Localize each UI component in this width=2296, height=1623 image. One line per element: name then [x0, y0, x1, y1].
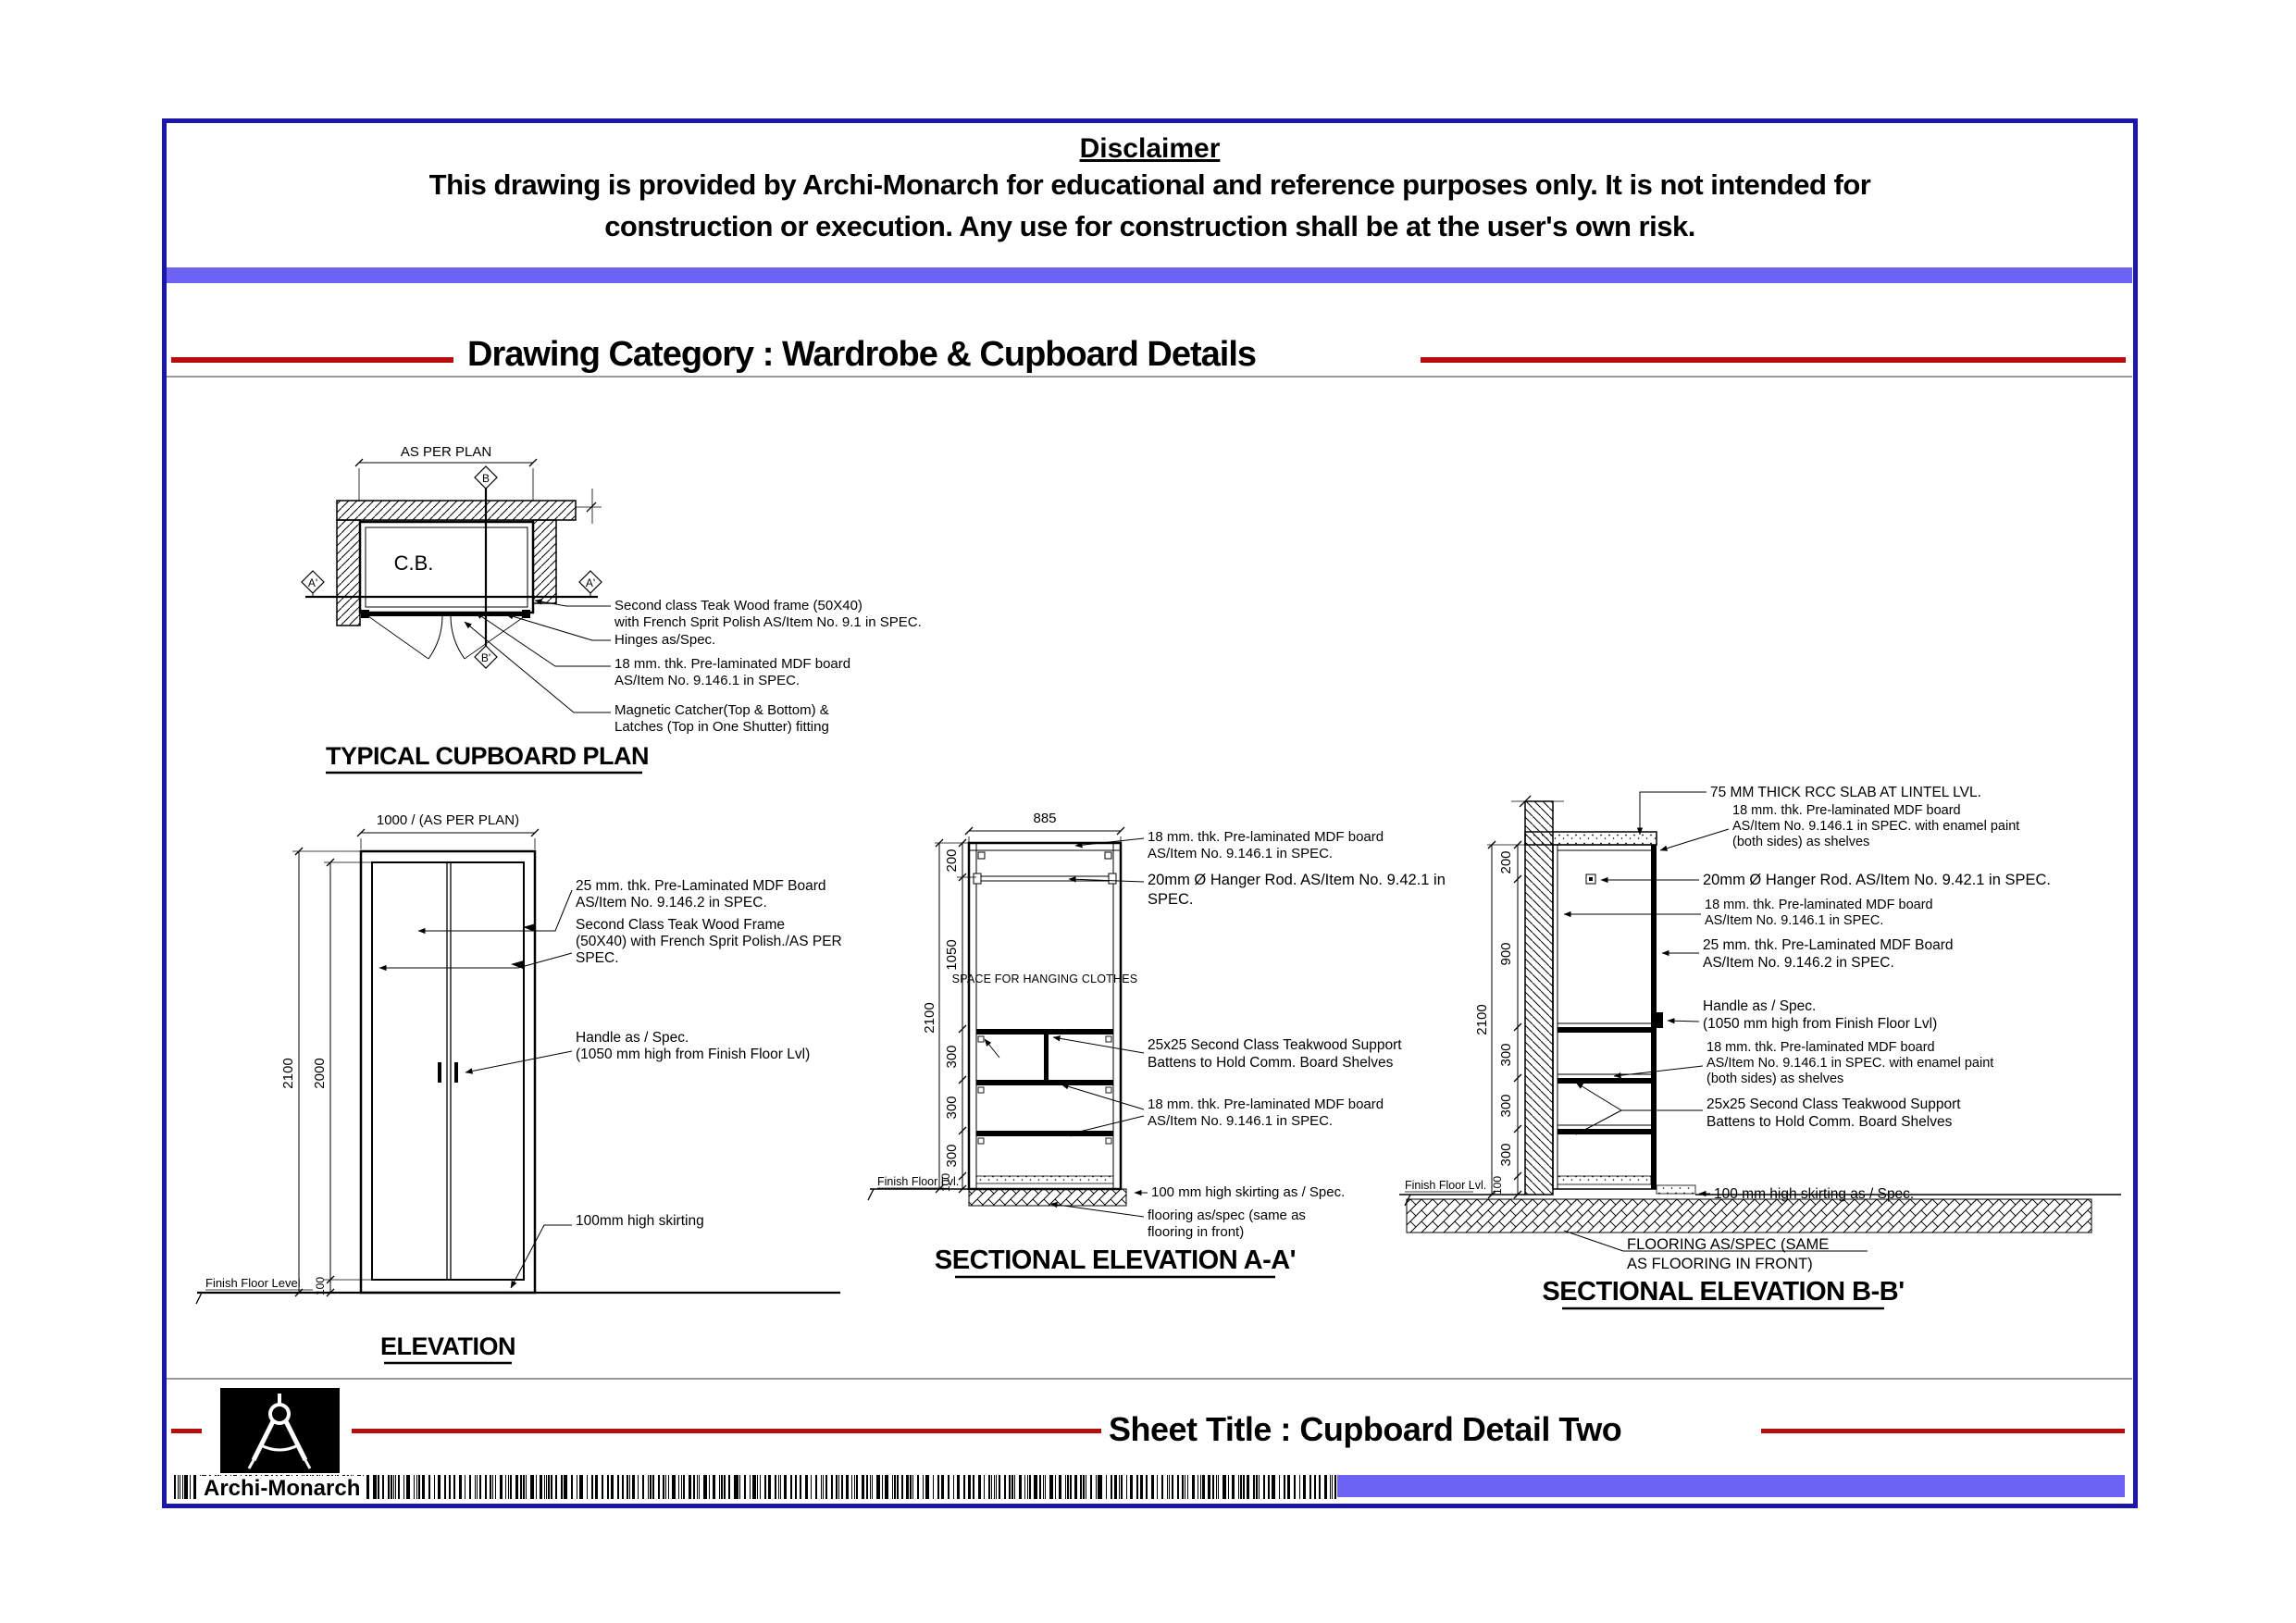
plan-cabinet-label: C.B. [394, 551, 434, 575]
elevation-handle-right [454, 1062, 458, 1083]
bb-ann-rod: 20mm Ø Hanger Rod. AS/Item No. 9.42.1 in… [1703, 872, 2051, 888]
bb-ann-shelf-enamel-2: AS/Item No. 9.146.1 in SPEC. with enamel… [1706, 1056, 1993, 1071]
elevation-dim-width-label: 1000 / (AS PER PLAN) [377, 812, 519, 828]
bb-ffl-label: Finish Floor Lvl. [1405, 1179, 1486, 1192]
aa-ann-battens-1: 25x25 Second Class Teakwood Support [1148, 1037, 1402, 1053]
footer-rule-left [352, 1429, 1101, 1433]
bb-dimensions-left: 200 900 300 300 300 100 2100 [1474, 841, 1525, 1198]
footer-rule-dash [171, 1429, 202, 1433]
plan-ann-mdf-2: AS/Item No. 9.146.1 in SPEC. [614, 673, 800, 688]
plan-ann-catcher-1: Magnetic Catcher(Top & Bottom) & [614, 702, 829, 718]
bb-ann-skirting: 100 mm high skirting as / Spec. [1714, 1186, 1914, 1202]
bb-cabinet [1553, 845, 1695, 1194]
plan-marker-b-prime: B' [481, 651, 490, 664]
elev-ann-frame-1: Second Class Teak Wood Frame [576, 917, 785, 933]
aa-floor: Finish Floor Lvl. [868, 1175, 969, 1200]
aa-cabinet: SPACE FOR HANGING CLOTHES [952, 843, 1138, 1206]
plan-marker-b: B [482, 472, 490, 485]
elevation-cabinet [361, 851, 535, 1293]
plan-drawing: C.B. A' A' [302, 444, 922, 773]
aa-space-label: SPACE FOR HANGING CLOTHES [952, 973, 1138, 985]
plan-shutters [361, 610, 530, 659]
plan-marker-a-right: A' [586, 576, 595, 589]
elev-ann-mdf-2: AS/Item No. 9.146.2 in SPEC. [576, 895, 767, 911]
elevation-ffl-label: Finish Floor Level [205, 1276, 301, 1290]
section-aa-drawing: 885 SPACE FOR HANGING CLOTHES [868, 811, 1446, 1277]
brand-logo [220, 1388, 340, 1473]
elev-ann-frame-3: SPEC. [576, 950, 619, 966]
elev-ann-skirting: 100mm high skirting [576, 1213, 704, 1229]
bb-dim-total: 2100 [1474, 1004, 1490, 1035]
aa-dim-3: 300 [944, 1096, 960, 1119]
plan-dimension-width: AS PER PLAN [355, 444, 537, 502]
bb-dim-5: 100 [1491, 1176, 1504, 1195]
aa-ann-skirting: 100 mm high skirting as / Spec. [1151, 1184, 1345, 1200]
elevation-dim-door: 2000 [312, 1058, 328, 1088]
elev-ann-handle-2: (1050 mm high from Finish Floor Lvl) [576, 1047, 810, 1062]
elev-ann-frame-2: (50X40) with French Sprit Polish./AS PER [576, 934, 842, 949]
aa-dimension-width: 885 [965, 811, 1124, 844]
bb-ann-handle-1: Handle as / Spec. [1703, 998, 1816, 1014]
elevation-dim-total: 2100 [280, 1058, 296, 1088]
aa-dim-1: 1050 [944, 939, 960, 970]
aa-ann-rod-1: 20mm Ø Hanger Rod. AS/Item No. 9.42.1 in [1148, 872, 1446, 888]
bb-ann-flooring-2: AS FLOORING IN FRONT) [1627, 1256, 1813, 1272]
plan-ann-frame-2: with French Sprit Polish AS/Item No. 9.1… [614, 614, 922, 630]
elevation-handle-left [438, 1062, 441, 1083]
bb-ann-slab: 75 MM THICK RCC SLAB AT LINTEL LVL. [1710, 785, 1981, 800]
plan-ann-hinges: Hinges as/Spec. [614, 632, 715, 648]
bb-ann-shelf-enamel-top-2: AS/Item No. 9.146.1 in SPEC. with enamel… [1732, 819, 2019, 834]
bb-ann-shelf-enamel-1: 18 mm. thk. Pre-laminated MDF board [1706, 1040, 1935, 1055]
aa-ann-flooring-1: flooring as/spec (same as [1148, 1208, 1306, 1223]
elevation-dimensions-left: 2100 2000 100 [280, 848, 372, 1296]
bb-dim-3: 300 [1498, 1094, 1514, 1117]
aa-annotations: 18 mm. thk. Pre-laminated MDF board AS/I… [1148, 829, 1446, 1240]
bb-dim-0: 200 [1498, 850, 1514, 873]
aa-ann-flooring-2: flooring in front) [1148, 1224, 1244, 1240]
elevation-title: ELEVATION [380, 1332, 515, 1360]
elevation-annotations: 25 mm. thk. Pre-Laminated MDF Board AS/I… [576, 878, 842, 1229]
aa-title: SECTIONAL ELEVATION A-A' [935, 1245, 1296, 1275]
drawing-sheet: Disclaimer This drawing is provided by A… [0, 0, 2296, 1623]
plan-marker-a-left: A' [308, 576, 317, 589]
aa-dim-width-label: 885 [1033, 811, 1056, 826]
plan-annotations: Second class Teak Wood frame (50X40) wit… [614, 598, 922, 735]
plan-carcass: C.B. [360, 522, 533, 613]
bb-dim-1: 900 [1498, 942, 1514, 965]
bb-ann-shelf-enamel-top-1: 18 mm. thk. Pre-laminated MDF board [1732, 803, 1961, 818]
bb-handle [1657, 1012, 1663, 1028]
drawing-canvas: C.B. A' A' [0, 0, 2296, 1623]
aa-dim-5: 100 [939, 1173, 952, 1192]
aa-ann-mdf-top-2: AS/Item No. 9.146.1 in SPEC. [1148, 846, 1333, 861]
bb-ann-shelf-enamel-3: (both sides) as shelves [1706, 1072, 1843, 1086]
aa-ann-mdf-top-1: 18 mm. thk. Pre-laminated MDF board [1148, 829, 1384, 845]
bb-ann-mdf25-2: AS/Item No. 9.146.2 in SPEC. [1703, 955, 1894, 971]
aa-ann-rod-2: SPEC. [1148, 891, 1194, 908]
bb-ann-flooring-1: FLOORING AS/SPEC (SAME [1627, 1236, 1829, 1253]
section-bb-drawing: Finish Floor Lvl. 200 900 300 300 300 10… [1399, 785, 2121, 1308]
bb-wall [1511, 796, 1564, 1195]
bb-dim-2: 300 [1498, 1043, 1514, 1066]
bb-ann-shelf-enamel-top-3: (both sides) as shelves [1732, 835, 1869, 849]
plan-ann-mdf-1: 18 mm. thk. Pre-laminated MDF board [614, 656, 850, 672]
bb-ann-handle-2: (1050 mm high from Finish Floor Lvl) [1703, 1016, 1937, 1032]
footer-rule-right [1761, 1429, 2125, 1433]
bb-ann-battens-2: Battens to Hold Comm. Board Shelves [1706, 1114, 1953, 1130]
plan-title: TYPICAL CUPBOARD PLAN [326, 742, 649, 770]
bb-ann-battens-1: 25x25 Second Class Teakwood Support [1706, 1096, 1961, 1112]
aa-dim-0: 200 [944, 849, 960, 872]
bb-ann-mdf18-1: 18 mm. thk. Pre-laminated MDF board [1705, 898, 1933, 912]
compass-icon [220, 1388, 340, 1473]
aa-ann-mdf-shelf-2: AS/Item No. 9.146.1 in SPEC. [1148, 1113, 1333, 1129]
bb-title: SECTIONAL ELEVATION B-B' [1542, 1277, 1904, 1307]
elev-ann-mdf-1: 25 mm. thk. Pre-Laminated MDF Board [576, 878, 826, 894]
elevation-dimension-width: 1000 / (AS PER PLAN) [357, 812, 539, 849]
bottom-accent-bar [1337, 1475, 2125, 1497]
plan-ann-frame-1: Second class Teak Wood frame (50X40) [614, 598, 863, 613]
aa-dim-2: 300 [944, 1045, 960, 1068]
sheet-title: Sheet Title : Cupboard Detail Two [1109, 1410, 1621, 1449]
elev-ann-handle-1: Handle as / Spec. [576, 1030, 689, 1046]
aa-dim-4: 300 [944, 1144, 960, 1167]
plan-ann-catcher-2: Latches (Top in One Shutter) fitting [614, 719, 829, 735]
brand-name: Archi-Monarch [198, 1476, 366, 1502]
bb-dim-4: 300 [1498, 1143, 1514, 1166]
bb-ann-mdf25-1: 25 mm. thk. Pre-Laminated MDF Board [1703, 937, 1954, 953]
aa-ann-mdf-shelf-1: 18 mm. thk. Pre-laminated MDF board [1148, 1096, 1384, 1112]
bb-ann-mdf18-2: AS/Item No. 9.146.1 in SPEC. [1705, 913, 1883, 928]
aa-dim-total: 2100 [922, 1002, 937, 1033]
bb-slab [1525, 832, 1657, 845]
elevation-drawing: 1000 / (AS PER PLAN) 2100 2000 [196, 812, 842, 1363]
plan-dim-width-label: AS PER PLAN [401, 444, 491, 460]
aa-ann-battens-2: Battens to Hold Comm. Board Shelves [1148, 1055, 1394, 1071]
